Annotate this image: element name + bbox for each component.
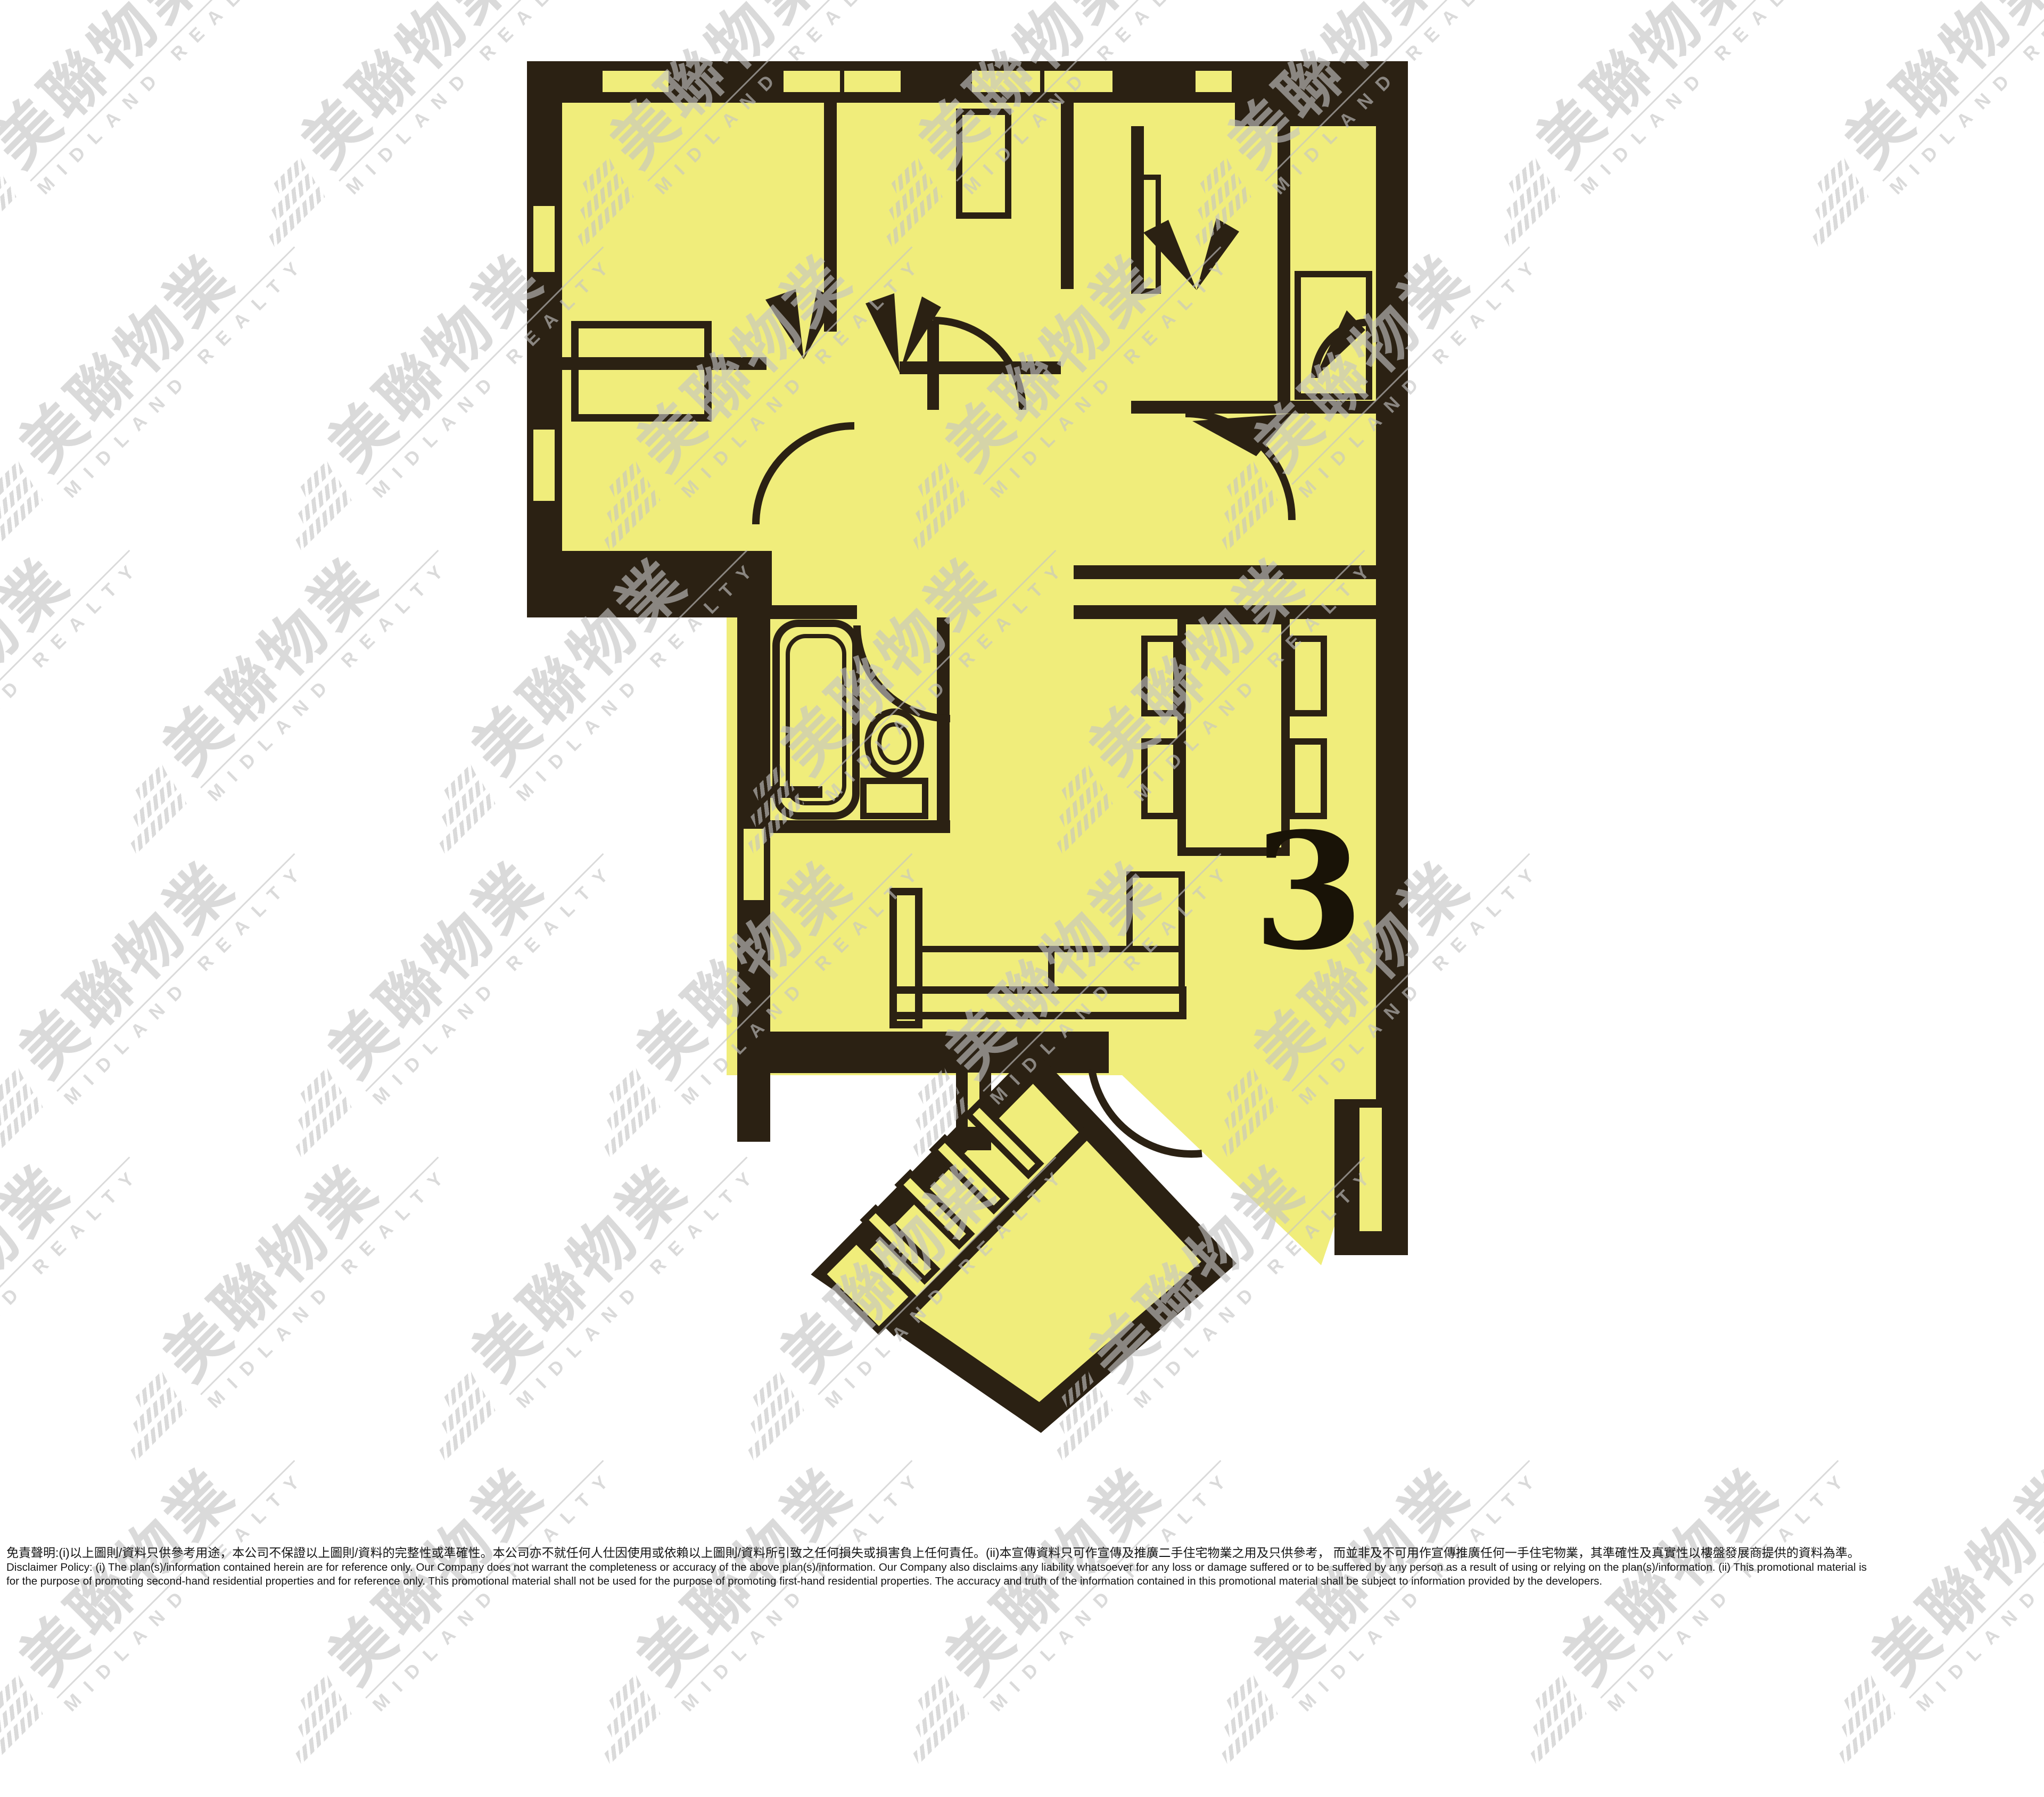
midland-logo-icon — [0, 1065, 43, 1158]
midland-logo-icon — [279, 458, 352, 551]
watermark-logo: 美聯物業MIDLAND REALTY — [1450, 0, 1819, 275]
watermark-logo: 美聯物業MIDLAND REALTY — [1477, 1423, 1845, 1792]
watermark-text-zh: 美聯物業 — [0, 502, 127, 786]
watermark-text-en: MIDLAND REALTY — [0, 250, 4, 502]
midland-logo-icon — [1796, 154, 1869, 248]
watermark-text-en: MIDLAND REALTY — [1604, 1464, 1856, 1716]
midland-logo-icon — [114, 761, 187, 854]
watermark-text-en: MIDLAND REALTY — [1577, 0, 1829, 199]
midland-logo-icon — [114, 1368, 187, 1461]
watermark-text-en: MIDLAND REALTY — [0, 857, 4, 1109]
midland-logo-icon — [279, 1671, 352, 1765]
midland-logo-icon — [588, 1671, 661, 1765]
midland-logo-icon — [1514, 1671, 1587, 1765]
watermark-text-en: MIDLAND REALTY — [0, 1464, 4, 1716]
watermark-logo: 美聯物業MIDLAND REALTY — [77, 1120, 446, 1489]
midland-logo-icon — [253, 154, 325, 248]
watermark-text-en: MIDLAND REALTY — [34, 0, 286, 199]
midland-logo-icon — [423, 761, 496, 854]
floor-fill — [527, 61, 1408, 1417]
watermark-text-en: MIDLAND REALTY — [0, 1160, 147, 1413]
disclaimer-line-en1: Disclaimer Policy: (i) The plan(s)/infor… — [6, 1561, 2038, 1575]
watermark-logo: 美聯物業MIDLAND REALTY — [0, 0, 275, 275]
midland-logo-icon — [1488, 154, 1560, 248]
watermark-text-en: MIDLAND REALTY — [1913, 1464, 2044, 1716]
watermark-logo: 美聯物業MIDLAND REALTY — [0, 1423, 301, 1792]
watermark-text-en: MIDLAND REALTY — [0, 554, 147, 806]
watermark-text-en: MIDLAND REALTY — [60, 1464, 312, 1716]
watermark-text-zh: 美聯物業 — [0, 1109, 127, 1392]
watermark-logo: 美聯物業MIDLAND REALTY — [0, 513, 136, 882]
midland-logo-icon — [1823, 1671, 1895, 1765]
floor-plan-svg: 3 — [527, 61, 1421, 1557]
midland-logo-icon — [423, 1368, 496, 1461]
disclaimer: 免責聲明:(i)以上圖則/資料只供參考用途，本公司不保證以上圖則/資料的完整性或… — [6, 1545, 2038, 1588]
watermark-logo: 美聯物業MIDLAND REALTY — [1759, 0, 2044, 275]
watermark-text-en: MIDLAND REALTY — [1886, 0, 2044, 199]
disclaimer-line-en2: for the purpose of promoting second-hand… — [6, 1575, 2038, 1588]
watermark-text-zh: 美聯物業 — [152, 1109, 436, 1392]
midland-logo-icon — [0, 154, 17, 248]
watermark-text-en: MIDLAND REALTY — [204, 554, 456, 806]
midland-logo-icon — [1206, 1671, 1278, 1765]
watermark-text-zh: 美聯物業 — [0, 0, 266, 179]
watermark-text-zh: 美聯物業 — [9, 805, 292, 1089]
watermark-logo: 美聯物業MIDLAND REALTY — [0, 210, 301, 579]
disclaimer-line-zh: 免責聲明:(i)以上圖則/資料只供參考用途，本公司不保證以上圖則/資料的完整性或… — [6, 1545, 2038, 1561]
watermark-text-zh: 美聯物業 — [1834, 0, 2044, 179]
watermark-text-en: MIDLAND REALTY — [60, 250, 312, 502]
unit-number: 3 — [1253, 797, 1364, 985]
midland-logo-icon — [279, 1065, 352, 1158]
watermark-text-en: MIDLAND REALTY — [204, 1160, 456, 1413]
midland-logo-icon — [0, 458, 43, 551]
midland-logo-icon — [897, 1671, 969, 1765]
floor-plan-image: 3 — [527, 61, 1421, 1557]
watermark-text-zh: 美聯物業 — [1526, 0, 1809, 179]
watermark-logo: 美聯物業MIDLAND REALTY — [0, 1120, 136, 1489]
watermark-logo: 美聯物業MIDLAND REALTY — [77, 513, 446, 882]
watermark-text-zh: 美聯物業 — [9, 199, 292, 482]
watermark-logo: 美聯物業MIDLAND REALTY — [0, 817, 301, 1185]
watermark-logo: 美聯物業MIDLAND REALTY — [1785, 1423, 2044, 1792]
watermark-text-en: MIDLAND REALTY — [60, 857, 312, 1109]
midland-logo-icon — [0, 1671, 43, 1765]
watermark-text-zh: 美聯物業 — [152, 502, 436, 786]
page: 3 美聯物業MIDLAND REALTY美聯物業MIDLAND REALTY美聯… — [0, 0, 2044, 1592]
